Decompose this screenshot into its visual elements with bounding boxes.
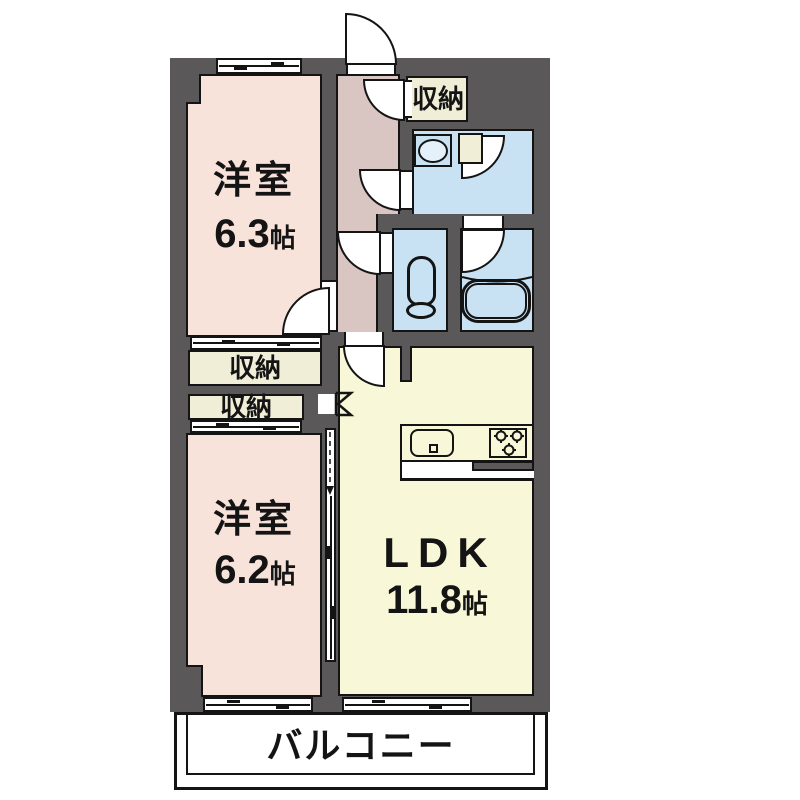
ldk-door-icon [344,346,384,386]
folding-door-icon [336,393,351,415]
bedroom1-door-icon [283,288,329,334]
bedroom2-name-label: 洋室 [213,501,295,539]
bedroom1-name-label: 洋室 [213,162,295,200]
entrance-closet-label: 収納 [412,86,464,112]
washbasin-bowl-icon [418,139,448,163]
closet1-label: 収納 [229,355,281,381]
plan-symbols-overlay [0,0,800,800]
ldk-size-label: 11.8帖 [386,580,488,620]
toilet-door-icon [338,232,380,274]
washroom-door-icon [360,170,400,210]
bedroom1-size-label: 6.3帖 [214,214,296,254]
bathroom-door-icon [462,230,504,272]
partition-guide-arrow [326,486,334,495]
balcony-label: バルコニー [266,728,455,764]
washer-space-icon [458,133,483,164]
bathtub-edge-curve [462,277,532,282]
entrance-door-icon [346,14,396,64]
floor-plan: 洋室 6.3帖 洋室 6.2帖 LDK 11.8帖 収納 収納 収納 バルコニー [0,0,800,800]
ldk-name-label: LDK [383,532,496,574]
bedroom2-size-label: 6.2帖 [214,550,296,590]
burner-icons [494,429,524,457]
closet2-label: 収納 [220,394,272,420]
entrance-closet-door-icon [364,80,404,120]
